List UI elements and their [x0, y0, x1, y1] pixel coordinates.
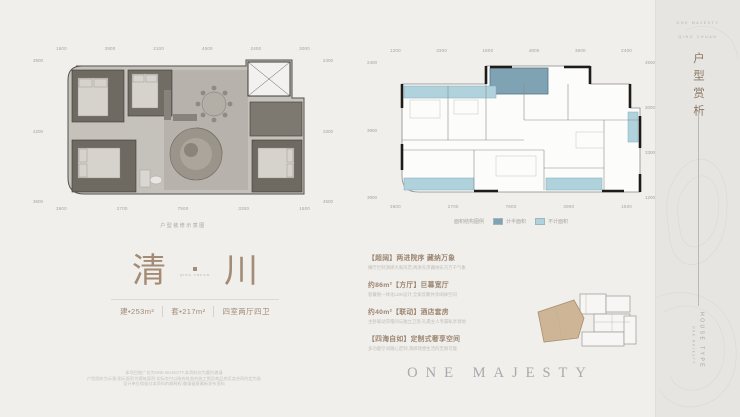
floorplan-right-dims-left: 240039003900: [366, 60, 378, 200]
floorplan-left-caption: 户型装修示意图: [32, 222, 334, 229]
sidebar-top-text: ONE MAJESTY·QING CHUAN: [656, 20, 740, 41]
disclaimer-text: 本项目推广名为ONE MAJESTY,本资料仅为要约邀请户型图仅为示意,图示面积…: [18, 370, 330, 387]
legend-title: 面积结构图例: [454, 218, 484, 225]
floorplan-left-dims-bottom: 36002700750033001500: [54, 206, 312, 211]
key-plan: [536, 292, 640, 354]
feature-item: 约86m²【方厅】巨幕宽厅 客餐厨一体化LDK设计,全家欢聚共享阔绰空间: [368, 279, 536, 298]
feature-item: 约40m²【联动】酒店套房 主卧联动衣帽间与独立卫浴,礼遇主人专属私享领地: [368, 306, 536, 325]
floorplan-right-drawing: [378, 56, 646, 200]
title-separator: QING CHUAN: [180, 267, 210, 277]
title-pinyin: QING CHUAN: [180, 273, 210, 277]
floorplan-right-dims-top: 120033001800480036002400: [388, 48, 634, 53]
highlighted-unit: [538, 300, 584, 342]
title-char-left: 清: [132, 254, 166, 290]
feature-list: 【超阔】两进院序 藏纳万象 横厅巨制演绎大家风范,两进礼序藏纳东方万千气象 约8…: [368, 252, 536, 360]
bathtub-icon: [150, 176, 162, 184]
spiral-stair-icon: [170, 128, 222, 180]
floorplan-legend: 面积结构图例 计半面积不计面积: [366, 218, 656, 225]
brochure-page: 150039002100450024003000 390042003600 24…: [0, 0, 740, 417]
shower-icon: [140, 170, 150, 187]
floorplan-left-group: 150039002100450024003000 390042003600 24…: [32, 46, 334, 232]
floorplan-right-group: 120033001800480036002400 240039003900 45…: [366, 48, 656, 232]
floorplan-left-dims-top: 150039002100450024003000: [54, 46, 312, 51]
legend-swatch-icon: [535, 218, 545, 225]
elevator-icon: [248, 62, 290, 96]
floorplan-left-drawing: [46, 54, 320, 204]
sidebar: ONE MAJESTY·QING CHUAN 户型赏析 ONE MAJESTY …: [655, 0, 740, 417]
floorplan-left-dims-right: 240033004500: [322, 58, 334, 204]
sidebar-rule: [698, 110, 699, 306]
page-title: 清 QING CHUAN 川: [95, 254, 295, 290]
title-block: 清 QING CHUAN 川 建•253m²套•217m²四室两厅四卫: [95, 254, 295, 317]
legend-swatch-icon: [493, 218, 503, 225]
floorplan-right-dims-bottom: 36002700780039001500: [388, 204, 634, 209]
brand-wordmark: ONE MAJESTY: [398, 365, 603, 382]
feature-item: 【超阔】两进院序 藏纳万象 横厅巨制演绎大家风范,两进礼序藏纳东方万千气象: [368, 252, 536, 271]
half-area-room: [490, 68, 548, 94]
title-char-right: 川: [224, 254, 258, 290]
floorplan-left-dims-left: 390042003600: [32, 58, 44, 204]
title-divider: [111, 299, 279, 300]
sidebar-bottom-main: HOUSE TYPE: [699, 312, 705, 369]
area-specs: 建•253m²套•217m²四室两厅四卫: [95, 306, 295, 317]
feature-item: 【四海自如】定制式奢享空间 多功能空间随心定制,演绎理想生活的无限可能: [368, 333, 536, 352]
sidebar-bottom-sub: ONE MAJESTY: [692, 326, 696, 369]
title-dot-icon: [193, 267, 197, 271]
sidebar-bottom-text: ONE MAJESTY HOUSE TYPE: [692, 312, 705, 369]
legend-items: 计半面积不计面积: [493, 218, 568, 225]
